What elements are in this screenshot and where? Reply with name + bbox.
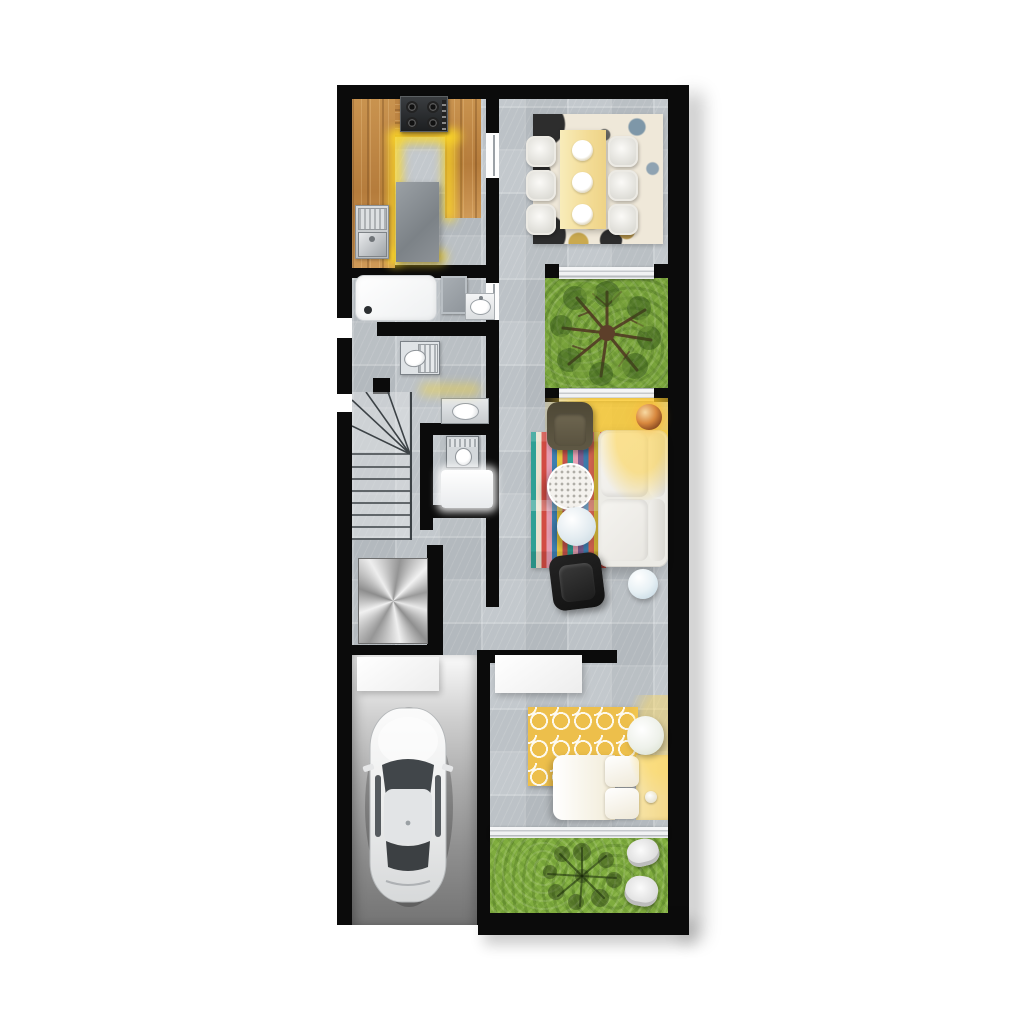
wall-bathroom2-left <box>420 430 433 530</box>
bathroom2-shower <box>441 470 493 508</box>
sink-faucet <box>369 236 375 242</box>
courtyard-post-se <box>654 387 668 402</box>
coffee-table-blue <box>557 507 596 546</box>
stove-control-strip <box>442 100 446 130</box>
bedroom-pouf <box>627 716 664 755</box>
bed-pillow <box>605 756 639 787</box>
washbasin-bowl <box>470 299 491 315</box>
left-wall-door-notch-1 <box>337 318 352 338</box>
dining-chair <box>526 204 556 235</box>
dining-chair <box>526 136 556 167</box>
dining-plate <box>572 204 593 225</box>
sofa-back-cushion-top <box>649 433 665 497</box>
bedroom-wardrobe <box>495 655 582 693</box>
kitchen-sink <box>355 205 389 259</box>
wc-toilet <box>400 341 440 375</box>
kitchen-island <box>396 182 439 262</box>
white-l-sofa <box>598 430 668 567</box>
bathroom1-shower-tray <box>355 275 437 321</box>
dining-chair <box>608 170 638 201</box>
wall-hall-living-west <box>486 320 499 607</box>
kitchen-stove <box>400 96 448 132</box>
bed-ornament <box>645 791 657 803</box>
bed-mattress-head <box>636 755 668 820</box>
sofa-seat-lower <box>601 499 648 561</box>
wall-left <box>337 85 352 925</box>
stove-burner <box>427 101 439 113</box>
courtyard-glass-door-bottom <box>559 389 654 401</box>
garden-tree-shadow <box>536 840 628 912</box>
bed-pillow <box>605 788 639 819</box>
metal-platform <box>358 558 428 644</box>
stove-burner <box>406 101 418 113</box>
dining-chair <box>608 136 638 167</box>
wall-top <box>337 85 689 99</box>
bed <box>553 755 668 820</box>
stove-burner <box>427 117 439 129</box>
coffee-table-dotted <box>547 463 594 510</box>
wall-platform-right <box>427 545 443 658</box>
courtyard-tree <box>549 280 665 386</box>
dining-plate <box>572 140 593 161</box>
courtyard-glass-door-top <box>559 267 654 279</box>
bathroom2-toilet <box>446 436 479 468</box>
black-armchair <box>548 551 606 612</box>
dining-chair <box>526 170 556 201</box>
wall-bottom <box>478 910 689 935</box>
toilet-bowl <box>455 448 472 466</box>
shower-drain <box>364 306 372 314</box>
bathroom1-bath-mat <box>441 276 467 314</box>
dining-chair <box>608 204 638 235</box>
floor-plan-canvas <box>0 0 1024 1013</box>
garage-storage-shelf <box>357 657 439 691</box>
bathroom-glow <box>420 384 480 395</box>
olive-armchair-seat <box>554 413 586 446</box>
wall-garage-bedroom <box>477 650 490 925</box>
wall-right <box>668 85 689 932</box>
wall-kitchen-dining-upper <box>486 99 499 133</box>
car <box>362 703 454 908</box>
stove-burner <box>406 117 418 129</box>
washbasin-faucet <box>479 296 483 300</box>
washbasin-bowl <box>452 403 479 420</box>
disco-ball-lamp <box>636 404 662 430</box>
bedroom-glass-door <box>490 827 668 838</box>
staircase <box>352 392 412 540</box>
olive-armchair <box>547 402 593 450</box>
ball-side-table <box>628 569 658 599</box>
dining-plate <box>572 172 593 193</box>
black-armchair-seat <box>558 562 596 603</box>
kitchen-sliding-door <box>486 133 499 178</box>
left-wall-door-notch-2 <box>337 394 352 412</box>
bathroom1-washbasin <box>465 293 495 320</box>
bathroom2-washbasin <box>441 398 489 424</box>
sink-drainboard <box>358 208 387 230</box>
toilet-cistern <box>449 439 477 447</box>
counter-glow-right <box>443 130 455 222</box>
sofa-seat-upper <box>601 433 648 497</box>
sofa-back-cushion-bottom <box>649 499 665 561</box>
courtyard-post-sw <box>545 387 559 402</box>
wall-bathroom1-bottom <box>377 322 499 336</box>
